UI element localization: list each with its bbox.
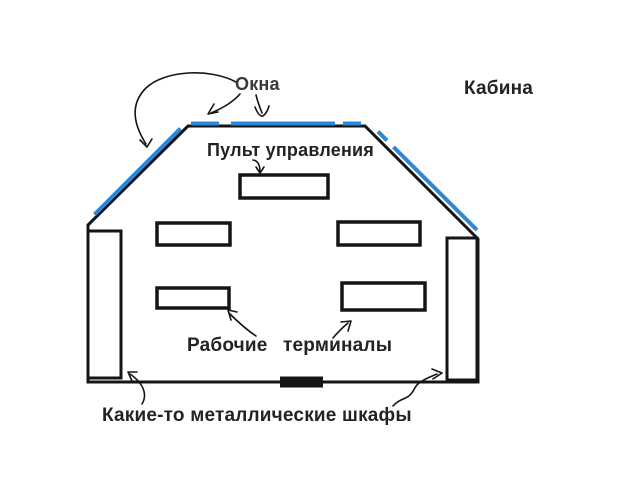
control-panel <box>240 175 328 198</box>
arrow-windows-mid <box>211 94 240 113</box>
terminal-upper-left <box>157 223 230 245</box>
cabinet-right <box>447 238 477 380</box>
arrow-terminal-right-head <box>341 321 351 331</box>
terminal-lower-left <box>157 288 229 308</box>
window-segment-left-slant <box>95 129 181 215</box>
door <box>280 377 323 388</box>
arrow-windows-mid-head <box>208 104 218 114</box>
windows-label: Окна <box>235 75 280 93</box>
terminal-upper-right <box>338 222 420 245</box>
arrow-terminal-left <box>229 313 256 336</box>
terminal-lower-right <box>342 283 425 310</box>
cabin-label: Кабина <box>464 79 533 98</box>
terminals-label: Рабочие терминалы <box>187 336 392 355</box>
window-segment-right-slant-2 <box>394 147 478 230</box>
cabinets-label: Какие-то металлические шкафы <box>102 406 412 425</box>
arrow-cabinet-left <box>130 374 145 404</box>
control-panel-label: Пульт управления <box>207 141 374 159</box>
arrow-cabinet-right <box>393 374 437 406</box>
cabinet-left <box>88 231 121 378</box>
floor-plan-sketch: Окна Кабина Пульт управления Рабочие тер… <box>0 0 640 480</box>
